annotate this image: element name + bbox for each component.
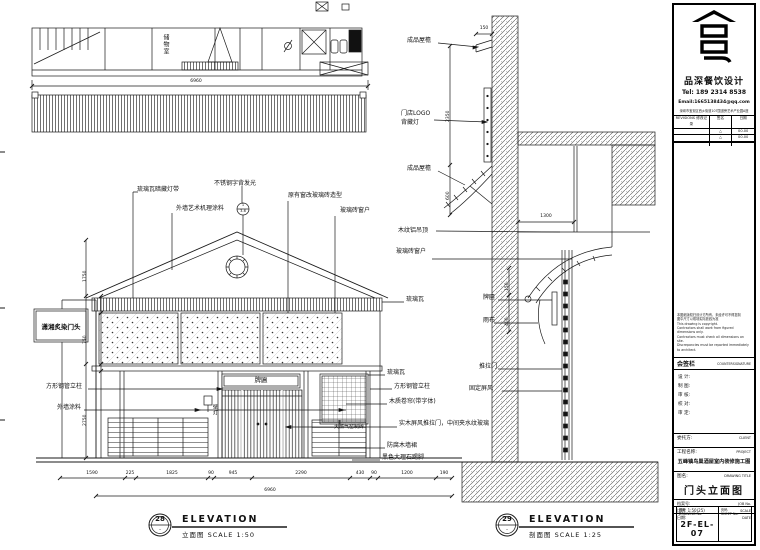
brand-email: Email:1665138434@qq.com [674, 100, 754, 105]
rev-row-mark: △ [709, 129, 732, 135]
countersign-en: COUNTERSIGNATURE [717, 362, 751, 366]
caption-left-dash: - [149, 527, 171, 533]
label-glassbrick-window-top: 玻璃砖窗户 [340, 208, 370, 214]
detail-marker-bottom: 3-6 [240, 210, 246, 214]
sign-field: 审 定: [674, 407, 754, 416]
label-exterior-paint: 外墙涂料 [57, 405, 81, 411]
project-en: PROJECT [736, 450, 751, 454]
label-wood-wainscot: 防腐木墙裙 [387, 443, 417, 449]
wall-lamp-label: 壁灯 [212, 404, 217, 416]
caption-right-title: ELEVATION [529, 514, 605, 525]
sheet-en: SHEET No. [721, 512, 749, 516]
client-row: 委托方: CLIENT [674, 433, 754, 442]
dim-b0: 1590 [86, 472, 97, 477]
rev-row-date: 00.00 [731, 129, 754, 135]
brand-logo-icon [674, 10, 754, 70]
label-steel-column-left: 方形钢管立柱 [46, 384, 82, 390]
label-marble-skirting: 黑色大理石踢脚 [382, 455, 424, 461]
project-row: 工程名称: PROJECT [674, 447, 754, 456]
brand-name: 品深餐饮设计 [674, 74, 754, 87]
rev-row-date: 00.00 [731, 135, 754, 141]
sign-field: 审 核: [674, 389, 754, 398]
drawing-title-en: DRAWING TITLE [724, 474, 751, 478]
dim-total: 6960 [264, 489, 275, 494]
note-line: Contractors must check all dimensions on… [674, 335, 754, 344]
plaque-label: 牌匾 [222, 377, 300, 384]
caption-left-number: 28 [149, 515, 171, 523]
label-glazed-tile-2: 琉璃瓦 [387, 370, 405, 376]
notes-block: 本图纸版权归设计方所有，未经许可不得复制 图中尺寸以现场实际放线为准 This … [674, 313, 754, 352]
rev-row-mark: △ [709, 135, 732, 141]
brand-tel: Tel: 189 2314 8538 [674, 89, 754, 96]
label-wood-screen-door: 实木屏风推拉门，中间夹水纹玻璃 [399, 421, 489, 427]
caption-right-subtitle: 剖面图 SCALE 1:25 [529, 529, 602, 539]
countersign-header: 会签栏 COUNTERSIGNATURE [674, 357, 754, 370]
detail-marker-top: 1 [242, 204, 244, 208]
dim-b9: 190 [440, 472, 449, 477]
dim-b7: 90 [371, 472, 377, 477]
dim-b1: 225 [126, 472, 135, 477]
drawing-sheet: 储物室 6960 琉璃瓦暗藏灯带 外墙艺术机理涂料 不锈钢字背发光 原有窗改玻璃… [0, 0, 760, 550]
caption-left-subtitle: 立面图 SCALE 1:50 [182, 529, 255, 539]
caption-right-dash: - [496, 527, 518, 533]
dim-s-plaque: 150 [506, 282, 511, 291]
revision-table: REVISIONS 修改记录 签名 日期 △ 00.00 △ 00.00 [674, 115, 754, 146]
storefront-sign: 潇湘炙染门头 [34, 309, 88, 342]
client-label: 委托方: [677, 435, 692, 441]
dim-b5: 2290 [295, 472, 306, 477]
number-en: DRAWING No. [679, 512, 716, 516]
label-backlight: 背藏灯 [401, 120, 419, 126]
plan-room-label: 储物室 [162, 34, 168, 55]
label-store-logo: 门店LOGO [401, 111, 430, 117]
drawing-title: 门头立面图 [674, 479, 754, 501]
caption-right-number: 29 [496, 515, 518, 523]
rev-row-desc [674, 135, 709, 141]
sign-field: 校 对: [674, 398, 754, 407]
rev-header-left: REVISIONS 修改记录 [674, 116, 709, 128]
label-window-to-glassbrick: 原有窗改玻璃砖造型 [288, 193, 342, 199]
dim-s-wall: 2350 [447, 111, 452, 122]
dim-s-banner: 400 [506, 317, 511, 326]
label-glazed-tile-1: 琉璃瓦 [406, 297, 424, 303]
sign-field: 设 计: [674, 371, 754, 380]
drawing-number-box: 图号 DRAWING No. 2F-EL-07 页码 SHEET No. [676, 506, 752, 542]
project-label: 工程名称: [677, 449, 697, 455]
dim-b8: 1200 [401, 472, 412, 477]
dim-b4: 945 [229, 472, 238, 477]
title-block: 品深餐饮设计 Tel: 189 2314 8538 Email:16651384… [672, 3, 756, 546]
dim-s-top: 150 [480, 27, 489, 32]
label-steel-column-right: 方形钢管立柱 [394, 384, 430, 390]
drawing-number: 2F-EL-07 [679, 520, 716, 538]
rev-row-desc [674, 129, 709, 135]
dim-b3: 90 [208, 472, 214, 477]
label-wood-aluminum-ceiling: 木纹铝吊顶 [398, 228, 428, 234]
label-sliding-door: 推拉门 [479, 364, 497, 370]
dim-l1: 750 [84, 335, 89, 344]
dim-s-eave: 600 [447, 191, 452, 200]
note-line: Contractors shall work from figured dime… [674, 326, 754, 335]
sign-field: 制 图: [674, 380, 754, 389]
gas-brick-label: 天燃气窑制砖 [334, 425, 364, 430]
label-steel-letters-backlit: 不锈钢字背发光 [214, 181, 256, 187]
dim-b6: 430 [356, 472, 365, 477]
dim-b2: 1825 [166, 472, 177, 477]
plan-total-dim: 6960 [190, 80, 201, 85]
label-prefab-eave-mid: 成品屋檐 [407, 166, 431, 172]
rev-header-mid: 签名 [709, 116, 732, 128]
cad-linework [0, 0, 760, 550]
caption-left-title: ELEVATION [182, 514, 258, 525]
note-line: Discrepancies must be reported immediate… [674, 343, 754, 352]
label-art-texture-coating: 外墙艺术机理涂料 [176, 206, 224, 212]
label-glazed-tile-hidden-light: 琉璃瓦暗藏灯带 [137, 187, 179, 193]
rev-header-right: 日期 [731, 116, 754, 128]
label-prefab-eave-top: 成品屋檐 [407, 38, 431, 44]
label-fixed-screen: 固定屏风 [469, 386, 493, 392]
sign-fields: 设 计: 制 图: 审 核: 校 对: 审 定: [674, 371, 754, 416]
label-glassbrick-window-sec: 玻璃砖窗户 [396, 249, 426, 255]
dim-s-ceiling: 1300 [540, 215, 551, 220]
client-en: CLIENT [739, 436, 751, 440]
brand-address: 深圳市宝安区西乡街道107国道旁艺术产业园A座 [674, 108, 754, 113]
label-rain-cloth: 雨布 [483, 318, 495, 324]
dim-l0: 1750 [84, 271, 89, 282]
project-name: 五峰镇鸟巢酒屋室内装修施工图 [674, 457, 754, 467]
dim-l2: 2750 [84, 415, 89, 426]
label-plaque-sec: 牌匾 [483, 295, 495, 301]
countersign-cn: 会签栏 [677, 359, 695, 368]
label-wood-shutter: 木质卷帘(带字体) [389, 399, 436, 405]
